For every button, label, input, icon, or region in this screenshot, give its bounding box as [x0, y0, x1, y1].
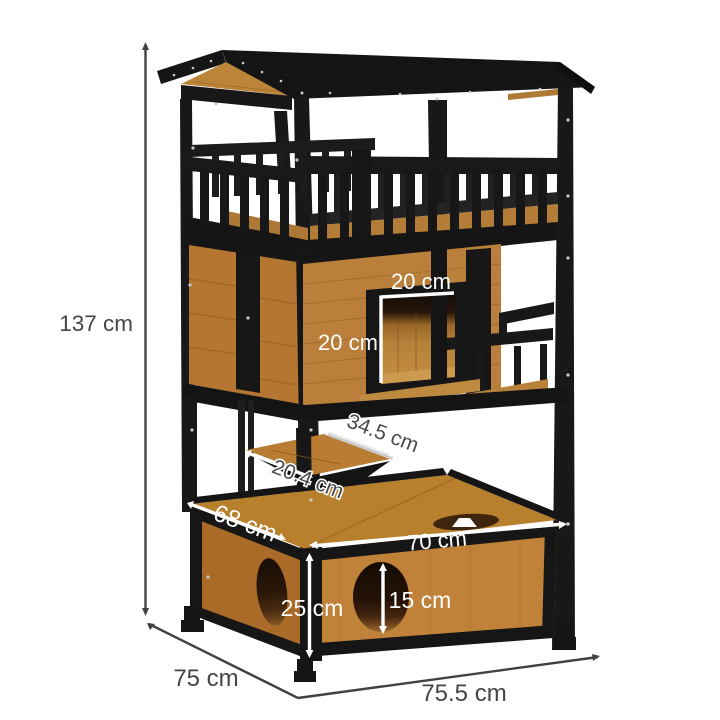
- svg-text:70 cm: 70 cm: [406, 525, 468, 555]
- svg-text:20 cm: 20 cm: [391, 269, 451, 294]
- svg-text:20 cm: 20 cm: [318, 330, 378, 355]
- svg-text:15 cm: 15 cm: [389, 587, 452, 613]
- svg-text:75 cm: 75 cm: [173, 665, 238, 692]
- svg-text:25 cm: 25 cm: [281, 595, 344, 621]
- svg-text:137 cm: 137 cm: [59, 311, 133, 336]
- svg-text:75.5 cm: 75.5 cm: [421, 680, 506, 707]
